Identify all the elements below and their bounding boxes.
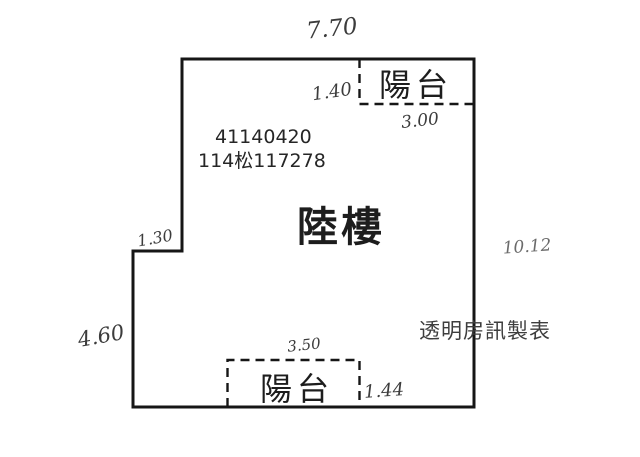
dim-right-height: 10.12 [502, 235, 552, 258]
registry-number-line1: 41140420 [215, 126, 312, 148]
dim-balcony-bottom-depth: 1.44 [363, 379, 404, 403]
watermark-text: 透明房訊製表 [419, 315, 551, 345]
balcony-top-label: 陽台 [379, 60, 453, 106]
balcony-bottom-label: 陽台 [260, 364, 334, 410]
floor-title: 陸樓 [297, 193, 385, 253]
dim-balcony-bottom-width: 3.50 [286, 334, 321, 355]
registry-number-line2: 114松117278 [198, 146, 326, 173]
dim-balcony-top-width: 3.00 [400, 109, 440, 133]
dim-top-width: 7.70 [305, 13, 359, 44]
floor-plan-page: 7.70 1.40 3.00 1.30 10.12 4.60 3.50 1.44… [0, 0, 640, 457]
